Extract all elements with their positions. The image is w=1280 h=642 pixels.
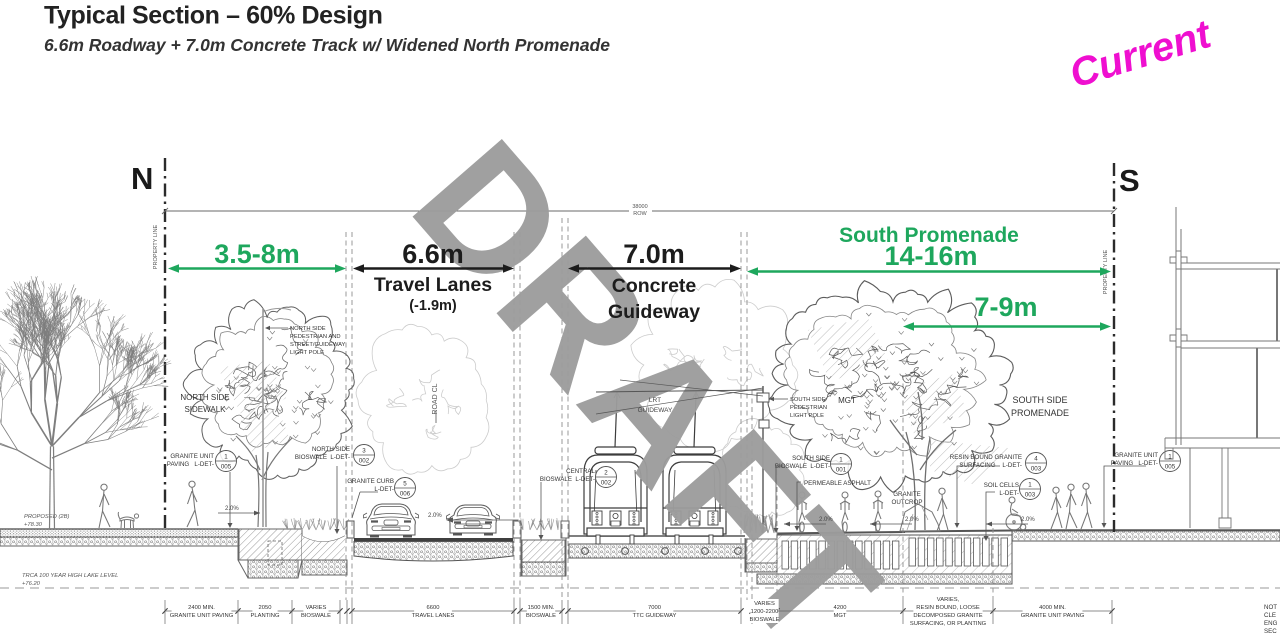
svg-text:GRANITE UNIT: GRANITE UNIT <box>170 453 214 460</box>
svg-text:1: 1 <box>1028 482 1032 489</box>
svg-text:1200-2200: 1200-2200 <box>751 609 779 615</box>
svg-text:2.0%: 2.0% <box>1021 517 1035 523</box>
svg-text:S: S <box>1119 163 1140 198</box>
svg-text:1: 1 <box>839 457 843 464</box>
svg-text:2: 2 <box>604 470 608 477</box>
svg-text:VARIES: VARIES <box>754 601 775 607</box>
svg-text:NORTH SIDE: NORTH SIDE <box>180 393 229 402</box>
svg-text:BIOSWALE: BIOSWALE <box>301 613 331 619</box>
svg-text:4200: 4200 <box>834 605 847 611</box>
svg-text:3.5-8m: 3.5-8m <box>214 239 300 269</box>
svg-text:LIGHT POLE: LIGHT POLE <box>290 350 324 356</box>
svg-text:2.0%: 2.0% <box>819 517 833 523</box>
svg-text:2.0%: 2.0% <box>225 506 239 512</box>
svg-text:ENG: ENG <box>1264 620 1278 627</box>
svg-text:ROAD CL: ROAD CL <box>432 383 439 414</box>
svg-text:SURFACING, OR PLANTING: SURFACING, OR PLANTING <box>910 621 987 627</box>
svg-text:PEDESTRIAN: PEDESTRIAN <box>790 405 827 411</box>
svg-text:BIOSWALE L-DET-: BIOSWALE L-DET- <box>540 476 595 483</box>
svg-text:SIDEWALK: SIDEWALK <box>184 405 226 414</box>
svg-text:SOIL CELLS: SOIL CELLS <box>984 482 1019 489</box>
svg-text:14-16m: 14-16m <box>884 241 977 271</box>
svg-text:LRT: LRT <box>649 397 661 404</box>
svg-text:BIOSWALE L-DET-: BIOSWALE L-DET- <box>775 463 830 470</box>
svg-text:NORTH SIDE: NORTH SIDE <box>312 446 350 453</box>
svg-text:SOUTH SIDE: SOUTH SIDE <box>790 397 826 403</box>
svg-text:2.0%: 2.0% <box>905 517 919 523</box>
svg-text:SEC: SEC <box>1264 628 1277 635</box>
svg-text:GRANITE CURB: GRANITE CURB <box>347 478 394 485</box>
svg-text:PROPERTY LINE: PROPERTY LINE <box>153 224 159 269</box>
svg-text:6.6m: 6.6m <box>402 239 464 269</box>
svg-text:006: 006 <box>400 491 411 498</box>
svg-text:SOUTH SIDE: SOUTH SIDE <box>1012 395 1067 405</box>
svg-text:GRANITE UNIT PAVING: GRANITE UNIT PAVING <box>170 613 234 619</box>
svg-text:SURFACING L-DET-: SURFACING L-DET- <box>959 462 1022 469</box>
svg-text:002: 002 <box>359 458 370 465</box>
svg-text:NOT: NOT <box>1264 604 1277 611</box>
svg-text:TRAVEL LANES: TRAVEL LANES <box>412 613 455 619</box>
svg-text:BIOSWALE: BIOSWALE <box>526 613 556 619</box>
svg-text:1500 MIN.: 1500 MIN. <box>528 605 555 611</box>
svg-text:VARIES,: VARIES, <box>937 597 960 603</box>
svg-text:CENTRAL: CENTRAL <box>566 468 595 475</box>
svg-text:3: 3 <box>362 448 366 455</box>
svg-text:MGT: MGT <box>834 613 847 619</box>
svg-text:6.6m Roadway + 7.0m Concrete T: 6.6m Roadway + 7.0m Concrete Track w/ Wi… <box>44 35 610 55</box>
svg-text:003: 003 <box>1025 492 1036 499</box>
svg-text:NORTH SIDE: NORTH SIDE <box>290 326 326 332</box>
svg-text:STREET/GUIDEWAY: STREET/GUIDEWAY <box>290 342 346 348</box>
svg-text:2.0%: 2.0% <box>428 513 442 519</box>
svg-text:7.0m: 7.0m <box>623 239 685 269</box>
svg-text:SOUTH SIDE: SOUTH SIDE <box>792 455 830 462</box>
svg-text:CLE: CLE <box>1264 612 1276 619</box>
svg-text:PERMEABLE ASPHALT: PERMEABLE ASPHALT <box>804 480 871 487</box>
svg-text:DECOMPOSED GRANITE: DECOMPOSED GRANITE <box>913 613 982 619</box>
svg-text:RESIN BOUND GRANITE: RESIN BOUND GRANITE <box>950 454 1022 461</box>
svg-text:PROMENADE: PROMENADE <box>1011 408 1069 418</box>
svg-text:005: 005 <box>221 464 232 471</box>
svg-text:Travel Lanes: Travel Lanes <box>374 274 492 296</box>
svg-text:2400 MIN.: 2400 MIN. <box>188 605 215 611</box>
svg-text:Guideway: Guideway <box>608 301 700 323</box>
svg-text:L-DET-: L-DET- <box>999 490 1019 497</box>
svg-text:5: 5 <box>403 481 407 488</box>
svg-text:PLANTING: PLANTING <box>251 613 280 619</box>
svg-text:2050: 2050 <box>259 605 272 611</box>
svg-text:Typical Section – 60% Design: Typical Section – 60% Design <box>44 2 382 30</box>
svg-text:003: 003 <box>1031 466 1042 473</box>
svg-text:+76.20: +76.20 <box>22 581 41 587</box>
svg-text:RESIN BOUND, LOOSE: RESIN BOUND, LOOSE <box>916 605 980 611</box>
svg-text:7000: 7000 <box>648 605 661 611</box>
svg-text:+78.30: +78.30 <box>24 522 43 528</box>
svg-text:002: 002 <box>601 480 612 487</box>
svg-text:LIGHT POLE: LIGHT POLE <box>790 413 824 419</box>
svg-text:TTC GUIDEWAY: TTC GUIDEWAY <box>633 613 677 619</box>
svg-text:OUTCROP: OUTCROP <box>892 499 923 506</box>
svg-text:BIOSWALE: BIOSWALE <box>749 617 779 623</box>
svg-text:1: 1 <box>224 454 228 461</box>
svg-text:001: 001 <box>836 467 847 474</box>
svg-text:PEDESTRIAN AND: PEDESTRIAN AND <box>290 334 341 340</box>
svg-text:MGT: MGT <box>838 396 856 405</box>
svg-text:(-1.9m): (-1.9m) <box>409 298 457 314</box>
svg-text:7-9m: 7-9m <box>974 292 1037 322</box>
svg-text:N: N <box>131 161 153 196</box>
svg-text:38000: 38000 <box>632 204 647 210</box>
svg-text:005: 005 <box>1165 464 1176 471</box>
svg-text:VARIES: VARIES <box>306 605 327 611</box>
svg-text:PAVING L-DET-: PAVING L-DET- <box>167 461 214 468</box>
svg-text:Concrete: Concrete <box>612 275 697 297</box>
svg-text:PROPOSED (2B): PROPOSED (2B) <box>24 514 69 520</box>
svg-text:TRCA 100 YEAR HIGH LAKE LEVEL: TRCA 100 YEAR HIGH LAKE LEVEL <box>22 573 118 579</box>
svg-text:4: 4 <box>1034 456 1038 463</box>
svg-text:GUIDEWAY: GUIDEWAY <box>638 407 673 414</box>
svg-text:GRANITE: GRANITE <box>893 491 921 498</box>
svg-text:ROW: ROW <box>633 211 647 217</box>
svg-text:6600: 6600 <box>427 605 440 611</box>
svg-text:BIOSWALE L-DET-: BIOSWALE L-DET- <box>295 454 350 461</box>
svg-text:4000 MIN.: 4000 MIN. <box>1039 605 1066 611</box>
svg-text:GRANITE UNIT PAVING: GRANITE UNIT PAVING <box>1021 613 1085 619</box>
svg-text:GRANITE UNIT: GRANITE UNIT <box>1114 452 1158 459</box>
